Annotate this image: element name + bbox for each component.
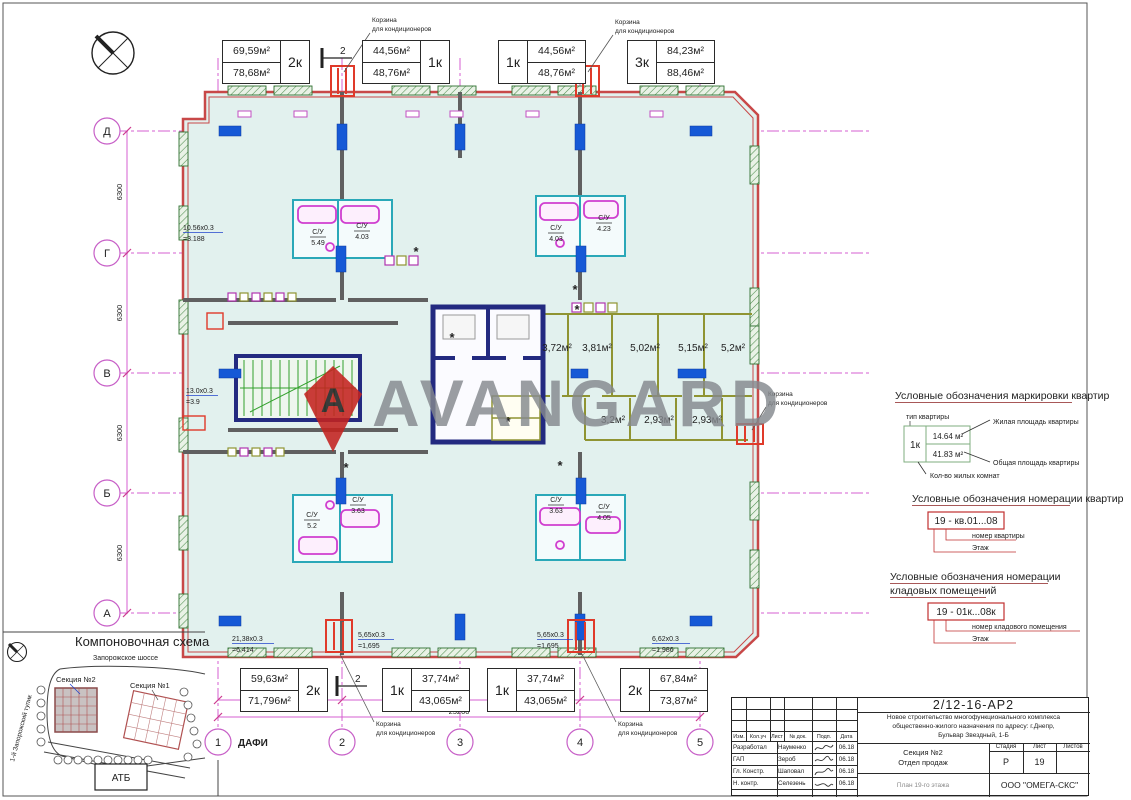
storage-area-label: 3,81м² [582, 343, 612, 354]
storage-area-label: 2,93м² [692, 415, 722, 426]
rooms-count: 1к [488, 669, 517, 711]
legend3-floor-label: Этаж [972, 636, 989, 643]
site-section2-block: Секция №2 [55, 675, 97, 732]
total-area: 78,68м² [223, 62, 280, 84]
legend1-living-label: Жилая площадь квартиры [993, 419, 1079, 426]
living-area: 44,56м² [363, 41, 420, 62]
legend1-rooms-label: Кол-во жилых комнат [930, 473, 1000, 480]
legend1-type: 1к [910, 440, 921, 451]
stamp-role: Н. контр. [733, 778, 777, 788]
sheets-label: Листов [1056, 743, 1090, 751]
section-number-top: 2 [340, 46, 346, 57]
svg-text:5: 5 [697, 737, 703, 749]
apartment-label: 3к 84,23м²88,46м² [627, 40, 715, 84]
rooms-count: 1к [383, 669, 412, 711]
object-name-1: Секция №2 [857, 747, 989, 757]
svg-text:С/У: С/У [550, 497, 562, 504]
apartment-label: 1к 44,56м²48,76м² [498, 40, 586, 84]
stage-label: Стадия [989, 743, 1023, 751]
site-compass-icon [8, 643, 27, 662]
storage-area-label: 5,2м² [721, 343, 746, 354]
site-section1-block: Секция №1 [124, 681, 189, 749]
total-area: 88,46м² [657, 62, 714, 84]
storage-area-label: 2,93м² [644, 415, 674, 426]
svg-text:4.03: 4.03 [549, 236, 563, 243]
svg-text:4.05: 4.05 [597, 515, 611, 522]
svg-text:Корзина: Корзина [615, 19, 640, 26]
svg-text:=1,695: =1,695 [358, 643, 380, 650]
svg-text:=1,695: =1,695 [537, 643, 559, 650]
svg-text:С/У: С/У [352, 497, 364, 504]
svg-text:2: 2 [339, 737, 345, 749]
living-area: 59,63м² [241, 669, 298, 690]
signature [814, 779, 834, 789]
legend2-floor-label: Этаж [972, 545, 989, 552]
rooms-count: 1к [420, 41, 449, 83]
sheet-value: 19 [1023, 751, 1056, 773]
svg-text:Корзина: Корзина [372, 17, 397, 24]
svg-text:=3.188: =3.188 [183, 236, 205, 243]
legend2-example: 19 - кв.01...08 [934, 516, 997, 527]
sheet-name: План 19-го этажа [857, 776, 989, 794]
svg-text:для кондиционеров: для кондиционеров [615, 28, 675, 35]
sheet-label: Лист [1023, 743, 1056, 751]
svg-text:для кондиционеров: для кондиционеров [768, 400, 828, 407]
stairwell [236, 356, 360, 420]
rooms-count: 2к [621, 669, 650, 711]
svg-text:Г: Г [104, 248, 110, 260]
elevator-core [433, 307, 543, 442]
stamp-name: Шаповал [778, 766, 812, 776]
svg-text:=6,414: =6,414 [232, 647, 254, 654]
rooms-count: 2к [280, 41, 309, 83]
svg-text:4.03: 4.03 [355, 234, 369, 241]
svg-text:С/У: С/У [356, 223, 368, 230]
svg-text:Корзина: Корзина [768, 391, 793, 398]
svg-text:В: В [103, 368, 110, 380]
legend1-type-label: тип квартиры [906, 414, 949, 421]
site-title: Компоновочная схема [75, 634, 210, 649]
stamp-name: Селезень [778, 778, 812, 788]
legend1-total: 41.83 м² [933, 450, 964, 459]
svg-text:А: А [103, 608, 111, 620]
living-area: 37,74м² [517, 669, 574, 690]
north-compass-icon [92, 32, 134, 74]
total-area: 73,87м² [650, 690, 707, 712]
legend3-num-label: номер кладового помещения [972, 624, 1067, 631]
axis-note: ДАФИ [238, 738, 268, 749]
svg-text:6,62х0.3: 6,62х0.3 [652, 636, 679, 643]
site-road-label: Запорожское шоссе [93, 655, 158, 662]
total-area: 48,76м² [363, 62, 420, 84]
svg-text:13.0х0.3: 13.0х0.3 [186, 388, 213, 395]
svg-text:3: 3 [457, 737, 463, 749]
svg-text:С/У: С/У [306, 512, 318, 519]
svg-text:5.49: 5.49 [311, 240, 325, 247]
svg-text:Б: Б [103, 488, 110, 500]
project-line: Новое строительство многофункционального… [859, 713, 1088, 722]
project-line: Бульвар Звездный, 1-Б [859, 731, 1088, 740]
svg-text:С/У: С/У [598, 215, 610, 222]
signature [814, 755, 834, 765]
living-area: 37,74м² [412, 669, 469, 690]
stamp-date: 06.18 [836, 742, 857, 752]
svg-text:для кондиционеров: для кондиционеров [618, 730, 678, 737]
stamp-col-koluch: Кол.уч [746, 732, 770, 741]
total-area: 43,065м² [412, 690, 469, 712]
stamp-role: Гл. Констр. [733, 766, 777, 776]
stamp-col-list: Лист [770, 732, 784, 741]
svg-text:Корзина: Корзина [618, 721, 643, 728]
apartment-label: 69,59м²78,68м² 2к [222, 40, 310, 84]
legend3-title2: кладовых помещений [890, 585, 997, 597]
storage-area-label: 5,02м² [630, 343, 660, 354]
site-street-label: 1-й Запорожский тупик [8, 694, 34, 763]
svg-text:21,38х0.3: 21,38х0.3 [232, 636, 263, 643]
stamp-name: Науменко [778, 742, 812, 752]
rooms-count: 3к [628, 41, 657, 83]
storage-area-label: 3,2м² [601, 415, 626, 426]
svg-text:10.56х0.3: 10.56х0.3 [183, 225, 214, 232]
company-name: ООО "ОМЕГА-СКС" [989, 773, 1090, 797]
svg-text:1: 1 [215, 737, 221, 749]
stamp-date: 06.18 [836, 766, 857, 776]
svg-text:5,65х0.3: 5,65х0.3 [537, 632, 564, 639]
svg-text:6300: 6300 [115, 545, 124, 562]
rooms-count: 2к [298, 669, 327, 711]
apartment-label: 59,63м²71,796м² 2к [240, 668, 328, 712]
site-store-label: АТБ [112, 773, 131, 784]
stamp-role: ГАП [733, 754, 777, 764]
total-area: 71,796м² [241, 690, 298, 712]
title-block: Изм. Кол.уч Лист № док. Подп. Дата Разра… [731, 697, 1089, 796]
project-line: общественно-жилого назначения по адресу:… [859, 722, 1088, 731]
stamp-role: Разработал [733, 742, 777, 752]
site-section2-label: Секция №2 [56, 675, 96, 684]
stamp-date: 06.18 [836, 754, 857, 764]
living-area: 69,59м² [223, 41, 280, 62]
svg-text:для кондиционеров: для кондиционеров [372, 26, 432, 33]
storage-area-label: 3,72м² [542, 343, 572, 354]
stage-value: Р [989, 751, 1023, 773]
svg-text:С/У: С/У [598, 504, 610, 511]
total-area: 48,76м² [528, 62, 585, 84]
storage-area-label: 5,15м² [678, 343, 708, 354]
site-section1-label: Секция №1 [130, 681, 170, 690]
legend1-title: Условные обозначения маркировки квартир [895, 390, 1110, 402]
apartment-label: 1к 37,74м²43,065м² [382, 668, 470, 712]
stamp-col-ndok: № док. [784, 732, 812, 741]
signature [814, 743, 834, 753]
legend2-num-label: номер квартиры [972, 533, 1025, 540]
svg-text:С/У: С/У [312, 229, 324, 236]
legend1-total-label: Общая площадь квартиры [993, 459, 1079, 467]
svg-text:6300: 6300 [115, 184, 124, 201]
legend1-living: 14.64 м² [933, 432, 964, 441]
rooms-count: 1к [499, 41, 528, 83]
doc-number: 2/12-16-АР2 [857, 698, 1090, 712]
apartment-label: 44,56м²48,76м² 1к [362, 40, 450, 84]
drawing-sheet: *** *** * 3,72м² 3,81м² 5,02м² 5,15м² 5,… [0, 0, 1131, 800]
legend3-example: 19 - 01к...08к [936, 607, 996, 618]
legend3-title1: Условные обозначения номерации [890, 571, 1061, 583]
svg-text:5,65х0.3: 5,65х0.3 [358, 632, 385, 639]
stamp-col-podp: Подп. [812, 732, 836, 741]
stamp-col-data: Дата [836, 732, 857, 741]
svg-text:=3.9: =3.9 [186, 399, 200, 406]
legend-storage-numbering: Условные обозначения номерации кладовых … [890, 571, 1080, 643]
section-number-bottom: 2 [355, 674, 361, 685]
svg-text:5.2: 5.2 [307, 523, 317, 530]
apartment-label: 1к 37,74м²43,065м² [487, 668, 575, 712]
svg-text:Д: Д [103, 126, 111, 138]
living-area: 67,84м² [650, 669, 707, 690]
stamp-date: 06.18 [836, 778, 857, 788]
legend-apartment-numbering: Условные обозначения номерации квартир 1… [912, 493, 1124, 552]
stamp-col-izm: Изм. [732, 732, 746, 741]
svg-text:=1,986: =1,986 [652, 647, 674, 654]
svg-text:3.63: 3.63 [549, 508, 563, 515]
living-area: 44,56м² [528, 41, 585, 62]
living-area: 84,23м² [657, 41, 714, 62]
object-name-2: Отдел продаж [857, 757, 989, 767]
svg-text:4.23: 4.23 [597, 226, 611, 233]
svg-text:6300: 6300 [115, 305, 124, 322]
svg-text:Корзина: Корзина [376, 721, 401, 728]
signature [814, 767, 834, 777]
apartment-label: 2к 67,84м²73,87м² [620, 668, 708, 712]
svg-text:6300: 6300 [115, 425, 124, 442]
stamp-name: Зероб [778, 754, 812, 764]
svg-text:С/У: С/У [550, 225, 562, 232]
legend-marking: Условные обозначения маркировки квартир … [895, 390, 1110, 480]
legend2-title: Условные обозначения номерации квартир [912, 493, 1124, 505]
svg-text:4: 4 [577, 737, 583, 749]
svg-text:для кондиционеров: для кондиционеров [376, 730, 436, 737]
total-area: 43,065м² [517, 690, 574, 712]
svg-text:3.63: 3.63 [351, 508, 365, 515]
